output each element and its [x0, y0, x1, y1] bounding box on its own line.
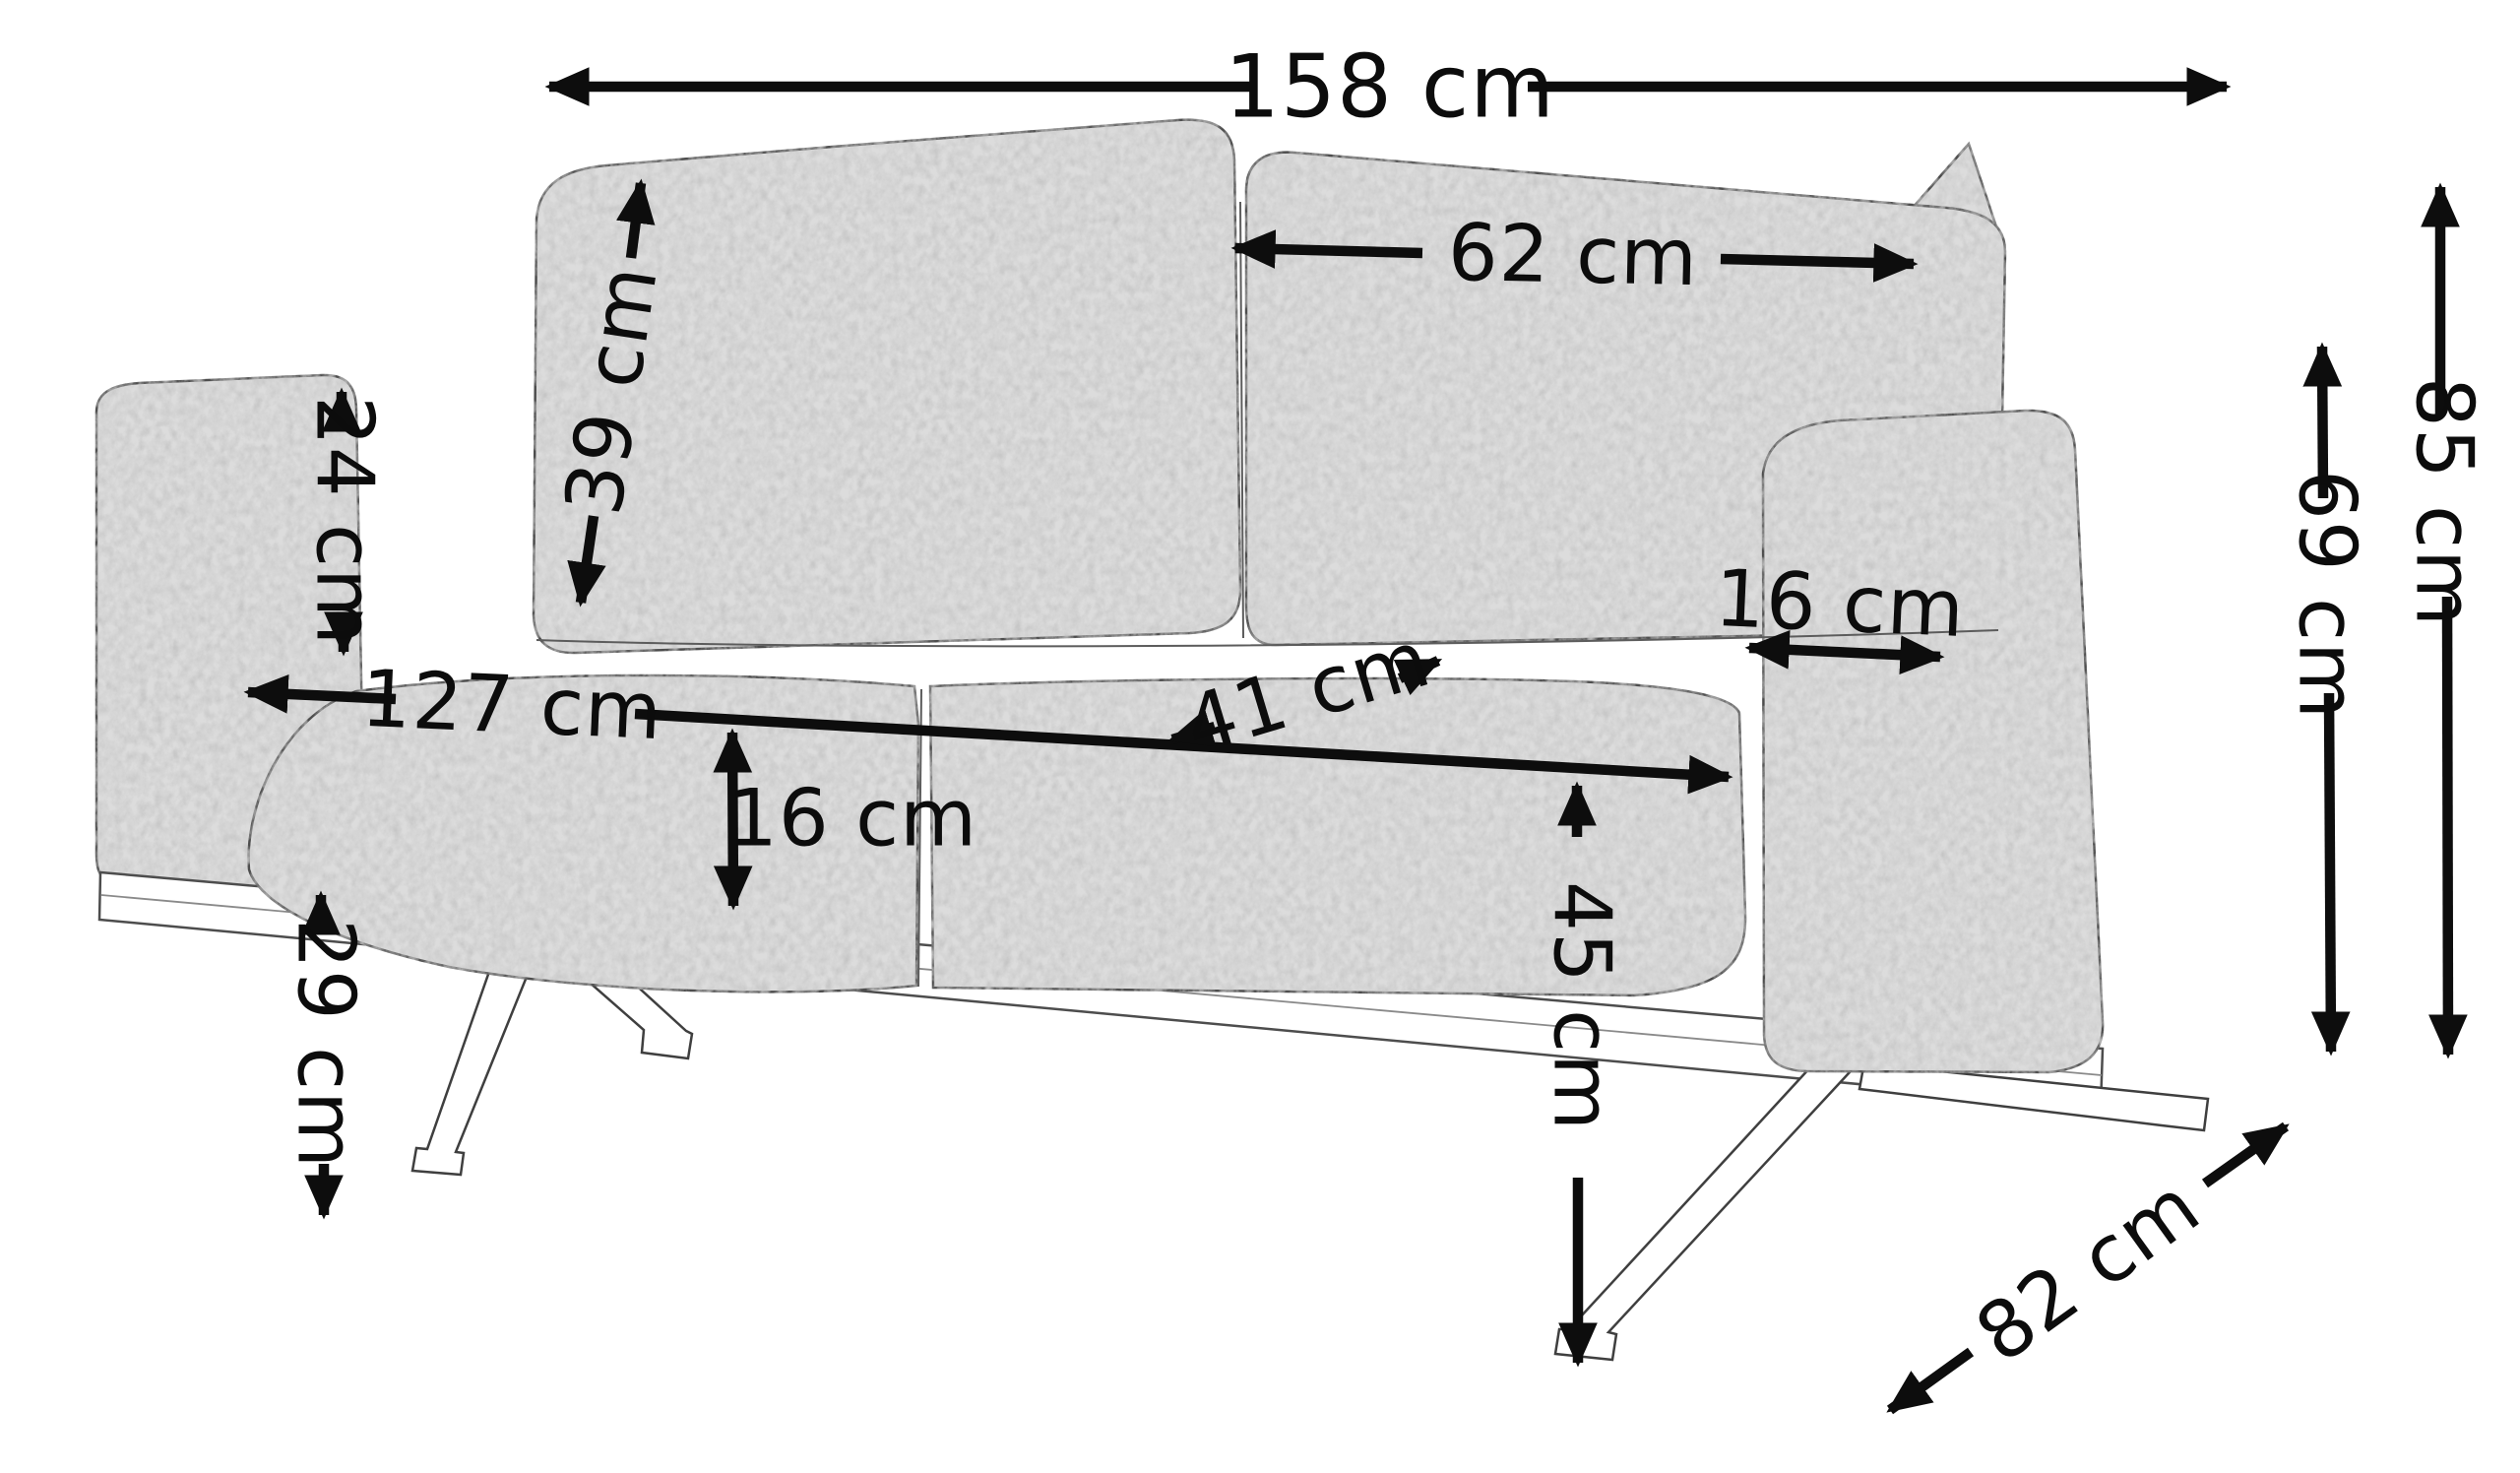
dim-seat-height-label: 45 cm [1537, 881, 1628, 1131]
dim-back-cushion-width-label: 62 cm [1447, 207, 1699, 303]
sofa-dimension-diagram: 158 cm 62 cm 39 cm 24 cm 127 cm 41 cm [0, 0, 2520, 1473]
dim-armrest-top-height-line [2329, 693, 2331, 1052]
diagram-canvas: 158 cm 62 cm 39 cm 24 cm 127 cm 41 cm [0, 0, 2520, 1473]
dim-total-width-label: 158 cm [1225, 36, 1555, 138]
dim-armrest-height-above-seat-label: 24 cm [299, 396, 391, 646]
dim-total-height-label: 85 cm [2399, 377, 2490, 627]
dim-back-cushion-width-line [1235, 248, 1422, 253]
dim-back-cushion-width-line [1721, 259, 1914, 264]
dim-armrest-width-label: 16 cm [1713, 552, 1967, 655]
dim-total-height-line [2447, 597, 2448, 1055]
dim-total-height: 85 cm [2399, 187, 2490, 1055]
armrest-right [1763, 411, 2103, 1072]
dim-seat-cushion-thickness-label: 16 cm [727, 773, 977, 865]
dim-clearance-height-label: 29 cm [281, 919, 372, 1169]
dim-seat-width-label: 127 cm [359, 653, 664, 757]
dim-armrest-width: 16 cm [1713, 552, 1967, 657]
dim-clearance-height: 29 cm [281, 895, 372, 1215]
dim-depth-label: 82 cm [1960, 1160, 2217, 1380]
dim-total-width: 158 cm [549, 36, 2227, 138]
dim-armrest-top-height-label: 69 cm [2282, 470, 2373, 720]
dim-depth-line [1890, 1352, 1971, 1410]
dim-armrest-height-above-seat: 24 cm [299, 392, 391, 652]
dim-depth-line [2205, 1126, 2286, 1184]
dim-depth: 82 cm [1890, 1126, 2286, 1410]
dim-armrest-top-height: 69 cm [2282, 347, 2373, 1052]
